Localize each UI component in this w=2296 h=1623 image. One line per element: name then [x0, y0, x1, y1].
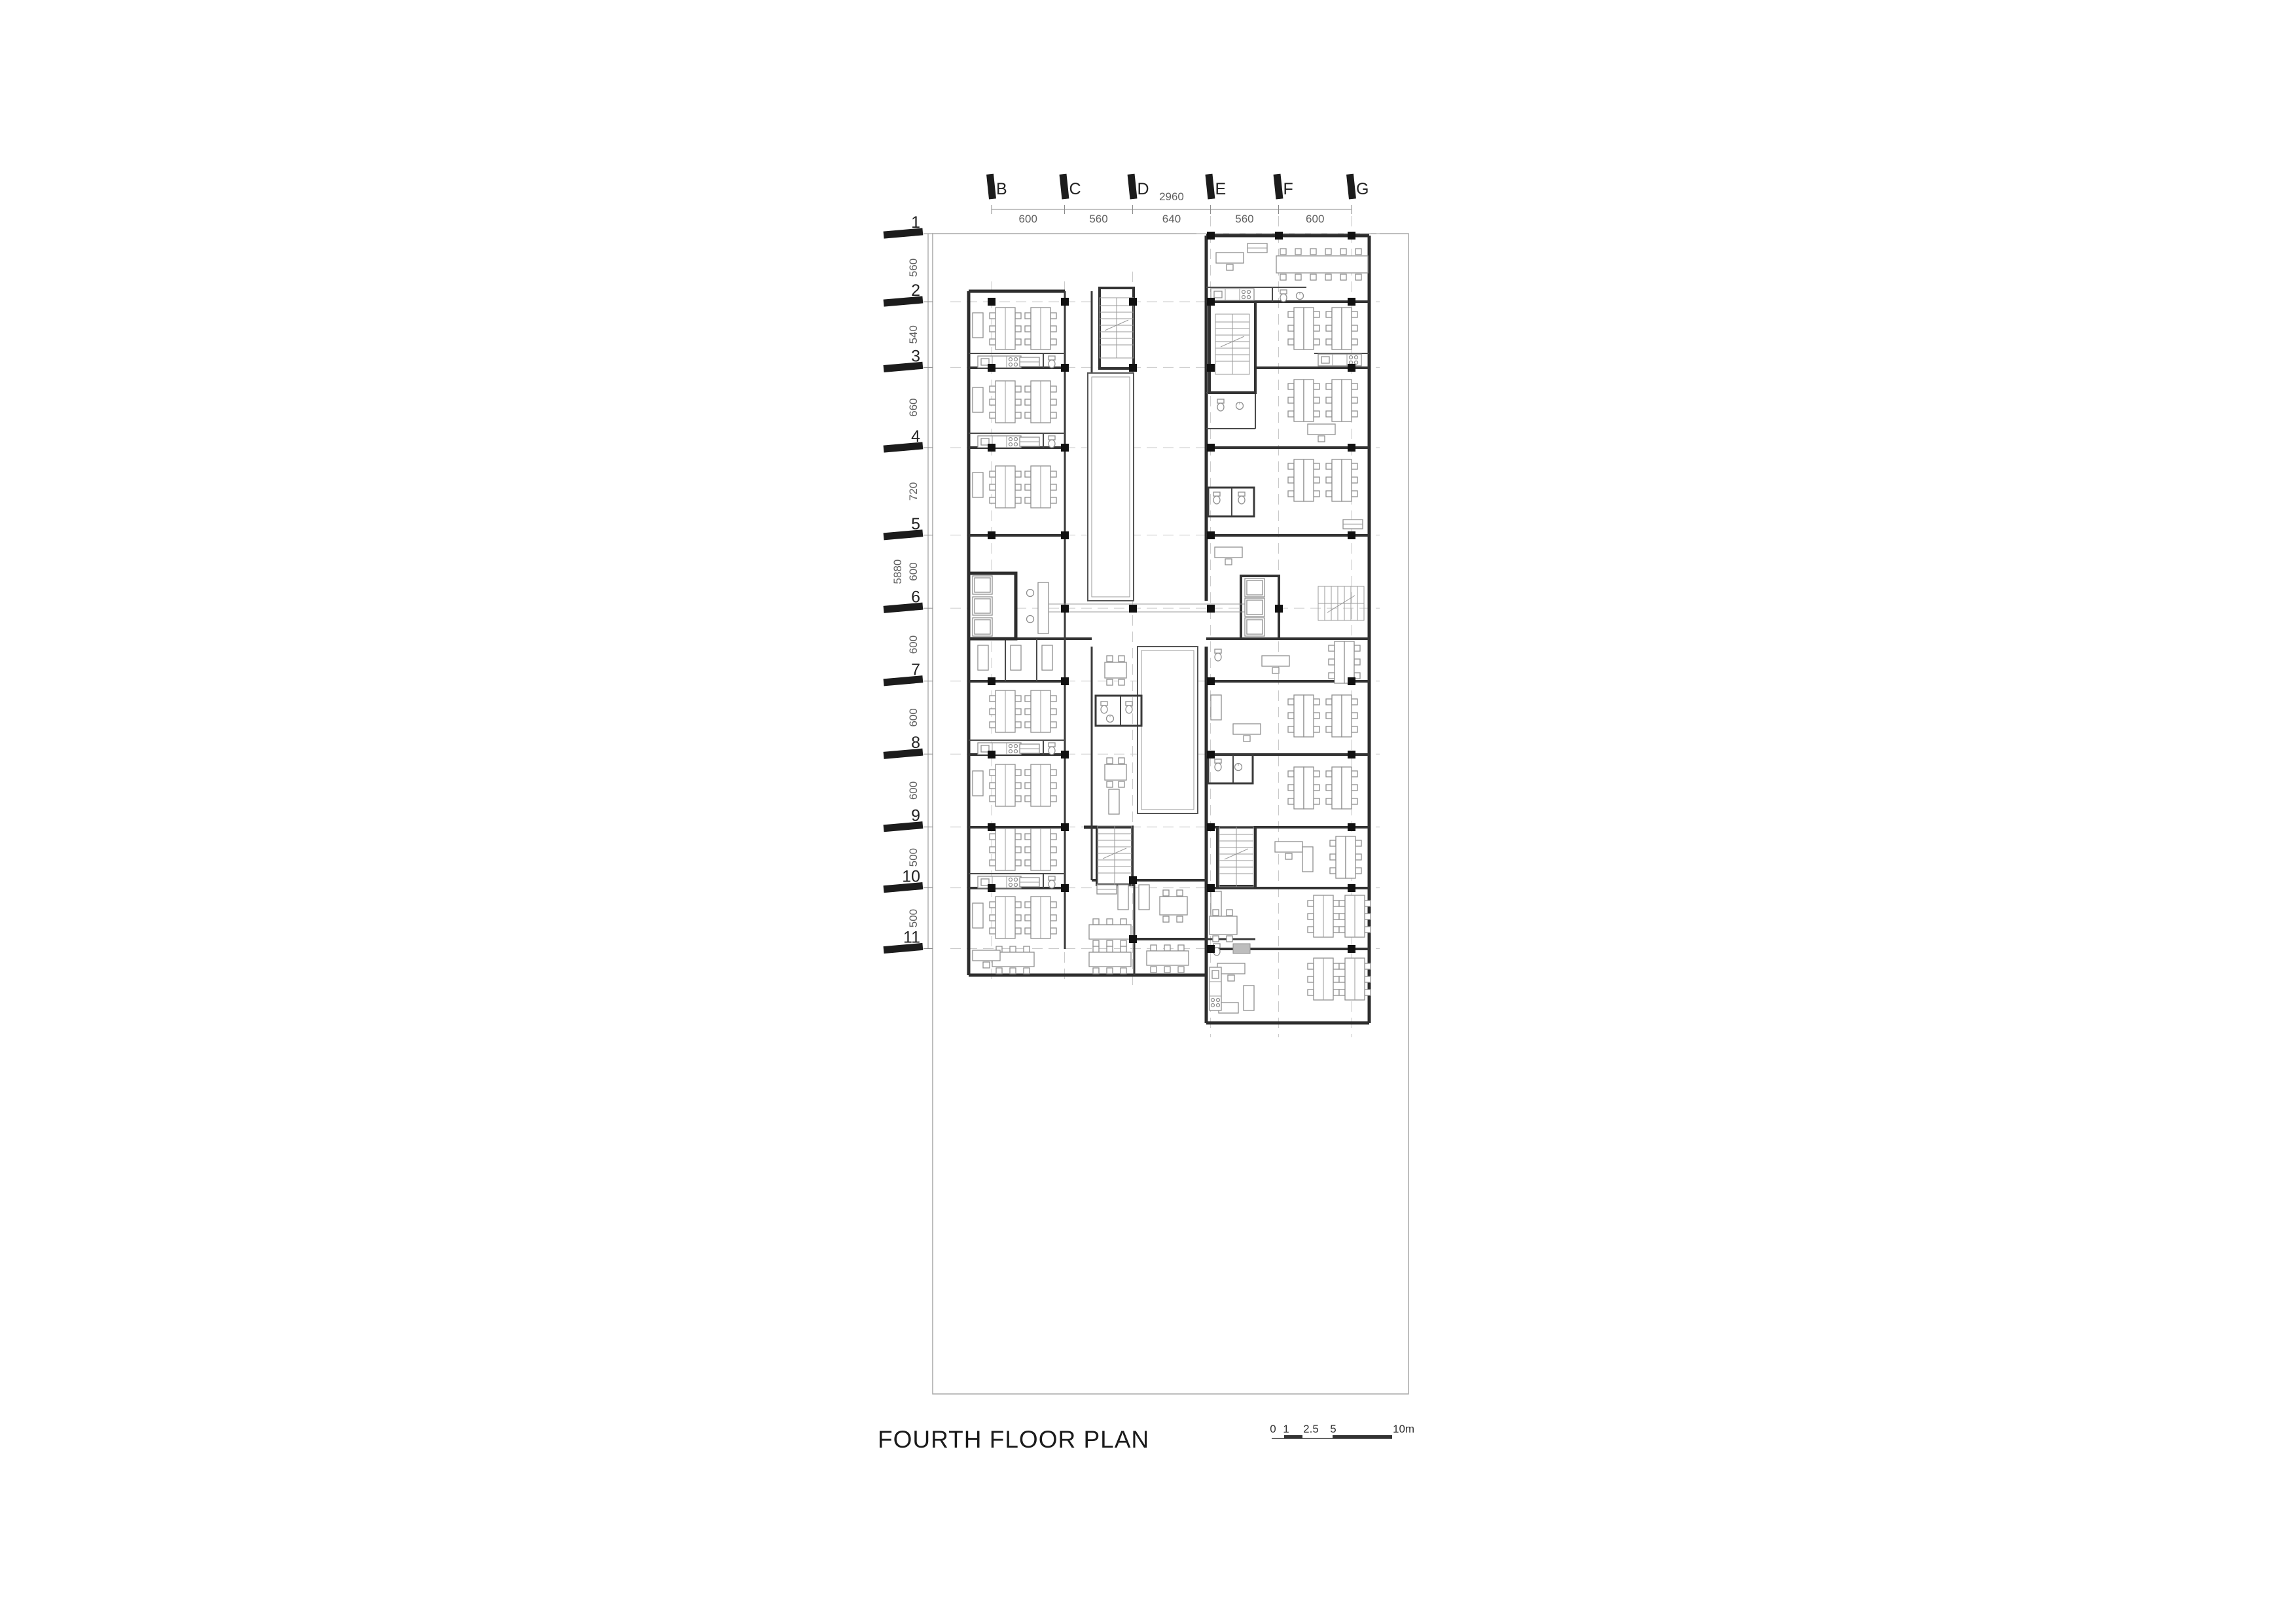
- toilet-icon: [1213, 492, 1220, 504]
- elevator-box: [1245, 598, 1265, 616]
- scale-label: 0: [1270, 1423, 1276, 1435]
- column-axis-tick: [1128, 174, 1138, 200]
- toilet-icon: [1049, 436, 1055, 448]
- column-marker: [1061, 531, 1069, 539]
- side-desk: [973, 387, 983, 412]
- side-desk: [1211, 695, 1221, 720]
- dimension-value: 600: [1019, 213, 1037, 225]
- row-axis-label: 3: [911, 347, 920, 365]
- scale-label: 2.5: [1303, 1423, 1319, 1435]
- dimension-value: 540: [907, 325, 920, 344]
- meeting-table: [990, 466, 1021, 508]
- elevator-box: [973, 576, 992, 594]
- side-desk: [1118, 885, 1128, 910]
- dimension-value: 640: [1162, 213, 1181, 225]
- column-marker: [1061, 364, 1069, 372]
- desk-cluster: [1288, 380, 1319, 421]
- toilet-icon: [1215, 649, 1221, 661]
- atrium-void: [1088, 373, 1134, 601]
- column-marker: [1061, 605, 1069, 613]
- column-axis-label: D: [1138, 180, 1149, 198]
- drawing-sheet: BCDEFG6005606405606002960 12345678910115…: [0, 0, 2296, 1623]
- elevator-box: [973, 618, 992, 636]
- dimension-value: 600: [1306, 213, 1324, 225]
- row-axis-label: 10: [902, 868, 920, 886]
- dimension-value: 660: [907, 399, 920, 417]
- column-marker: [1129, 605, 1137, 613]
- side-desk: [1244, 986, 1254, 1010]
- overall-dimension: 2960: [1159, 190, 1184, 203]
- kitchen-counter-top: [1233, 944, 1250, 954]
- meeting-table: [990, 381, 1021, 423]
- scale-bar: 0 1 2.5 5 10m: [1270, 1423, 1414, 1438]
- side-desk: [973, 903, 983, 928]
- column-marker: [1061, 298, 1069, 306]
- toilet-icon: [1101, 702, 1107, 713]
- elevator-box: [1245, 579, 1265, 597]
- meeting-table: [1025, 897, 1056, 938]
- planter: [1027, 616, 1034, 623]
- column-marker: [988, 677, 996, 685]
- meeting-table: [990, 829, 1021, 870]
- column-axis-label: E: [1215, 180, 1226, 198]
- toilet-icon: [1238, 492, 1245, 504]
- column-marker: [1348, 444, 1355, 452]
- column-axis-label: G: [1356, 180, 1369, 198]
- column-marker: [1207, 605, 1215, 613]
- row-axis-label: 5: [911, 515, 920, 533]
- column-marker: [1348, 823, 1355, 831]
- kitchen-counter: [978, 436, 1021, 448]
- desk: [1275, 842, 1302, 859]
- desk-cluster: [1326, 695, 1357, 737]
- column-marker: [988, 531, 996, 539]
- row-grid-ruler: 1234567891011560540660720600600600600500…: [884, 213, 933, 954]
- atrium-void: [1138, 647, 1198, 813]
- column-marker: [1348, 364, 1355, 372]
- column-marker: [1207, 364, 1215, 372]
- toilet-icon: [1126, 702, 1132, 713]
- sink-icon: [1107, 715, 1114, 722]
- meeting-table: [1308, 958, 1339, 1000]
- dimension-value: 560: [907, 259, 920, 277]
- sink-icon: [1236, 402, 1244, 410]
- title-block: FOURTH FLOOR PLAN: [878, 1426, 1149, 1453]
- row-axis-label: 4: [911, 427, 920, 446]
- meeting-table: [1025, 381, 1056, 423]
- column-marker: [1348, 232, 1355, 240]
- toilet-icon: [1215, 759, 1221, 771]
- meeting-table: [1025, 764, 1056, 806]
- conference-table: [1276, 249, 1368, 280]
- side-desk: [1011, 645, 1021, 670]
- cabinet: [1020, 357, 1039, 366]
- column-marker: [1348, 945, 1355, 953]
- column-marker: [1207, 945, 1215, 953]
- column-marker: [1207, 531, 1215, 539]
- meeting-table: [1339, 958, 1371, 1000]
- desk-cluster: [1330, 836, 1361, 878]
- desk-cluster: [1326, 380, 1357, 421]
- side-desk: [973, 771, 983, 796]
- conference-table-small: [1147, 945, 1189, 972]
- meeting-table: [1339, 895, 1371, 937]
- column-marker: [1129, 364, 1137, 372]
- dimension-value: 720: [907, 482, 920, 501]
- dimension-value: 600: [907, 562, 920, 580]
- scale-bar-segment: [1284, 1435, 1302, 1438]
- column-axis-label: B: [996, 180, 1007, 198]
- cabinet: [1343, 520, 1363, 529]
- column-marker: [988, 884, 996, 892]
- side-desk: [978, 645, 988, 670]
- row-axis-label: 6: [911, 588, 920, 606]
- side-desk: [973, 313, 983, 338]
- column-marker: [988, 444, 996, 452]
- column-marker: [988, 364, 996, 372]
- column-marker: [1348, 751, 1355, 758]
- desk: [1215, 547, 1242, 565]
- column-axis-label: F: [1283, 180, 1293, 198]
- side-desk: [1302, 847, 1313, 872]
- meeting-table: [1025, 690, 1056, 732]
- column-marker: [1207, 677, 1215, 685]
- toilet-icon: [1280, 290, 1287, 302]
- toilet-icon: [1049, 876, 1055, 888]
- column-marker: [1348, 677, 1355, 685]
- kitchen-counter: [978, 743, 1021, 755]
- conference-table-small: [1089, 946, 1131, 974]
- kitchen-counter: [978, 876, 1021, 888]
- column-marker: [1207, 884, 1215, 892]
- dimension-value: 600: [907, 781, 920, 800]
- column-axis-label: C: [1069, 180, 1081, 198]
- desk-cluster: [1326, 308, 1357, 349]
- desk-cluster: [1288, 459, 1319, 501]
- reception-desk: [1038, 582, 1049, 633]
- meeting-table: [1025, 829, 1056, 870]
- column-axis-tick: [1346, 174, 1356, 200]
- kitchen-counter: [978, 356, 1021, 368]
- toilet-icon: [1049, 356, 1055, 368]
- desk: [1262, 656, 1289, 673]
- plan-title: FOURTH FLOOR PLAN: [878, 1426, 1149, 1453]
- elevator-box: [1245, 618, 1265, 636]
- team-table: [1160, 890, 1187, 922]
- column-marker: [988, 298, 996, 306]
- scale-label: 5: [1330, 1423, 1336, 1435]
- desk-cluster: [1288, 767, 1319, 809]
- column-marker: [1207, 232, 1215, 240]
- row-axis-label: 1: [911, 213, 920, 232]
- meeting-table: [1025, 466, 1056, 508]
- sink-icon: [1297, 293, 1304, 300]
- column-marker: [988, 751, 996, 758]
- desk: [1308, 424, 1335, 442]
- desk-cluster: [1326, 767, 1357, 809]
- column-marker: [1129, 876, 1137, 884]
- planter: [1027, 590, 1034, 597]
- column-axis-tick: [986, 174, 996, 200]
- column-marker: [1275, 605, 1283, 613]
- sink-icon: [1235, 764, 1242, 771]
- row-axis-label: 7: [911, 661, 920, 679]
- dimension-value: 600: [907, 708, 920, 726]
- kitchen-counter: [1210, 967, 1221, 1010]
- meeting-table: [1025, 308, 1056, 349]
- dimension-value: 560: [1235, 213, 1253, 225]
- toilet-icon: [1049, 743, 1055, 755]
- column-marker: [1129, 935, 1137, 943]
- column-marker: [1207, 444, 1215, 452]
- cabinet: [1020, 744, 1039, 753]
- toilet-icon: [1217, 399, 1224, 411]
- column-marker: [1207, 298, 1215, 306]
- desk-cluster: [1288, 695, 1319, 737]
- meeting-table: [1308, 895, 1339, 937]
- cabinet: [1020, 437, 1039, 446]
- meeting-table: [990, 897, 1021, 938]
- desk-cluster: [1329, 641, 1360, 683]
- column-marker: [1207, 823, 1215, 831]
- scale-label: 10m: [1393, 1423, 1414, 1435]
- column-marker: [1061, 884, 1069, 892]
- row-axis-label: 2: [911, 281, 920, 300]
- desk: [1216, 253, 1244, 270]
- column-marker: [1275, 232, 1283, 240]
- column-axis-tick: [1205, 174, 1215, 200]
- dimension-value: 560: [1089, 213, 1107, 225]
- elevator-box: [973, 597, 992, 615]
- column-marker: [1348, 884, 1355, 892]
- column-marker: [1348, 298, 1355, 306]
- furniture-layer: [973, 243, 1371, 1010]
- column-marker: [1061, 444, 1069, 452]
- column-grid-ruler: BCDEFG6005606405606002960: [986, 174, 1369, 225]
- dimension-value: 600: [907, 635, 920, 654]
- cabinet: [1247, 243, 1267, 253]
- column-marker: [1348, 531, 1355, 539]
- desk: [1233, 724, 1261, 741]
- cabinet: [1020, 878, 1039, 887]
- column-axis-tick: [1274, 174, 1283, 200]
- meeting-table: [990, 690, 1021, 732]
- side-desk: [1042, 645, 1052, 670]
- desk-cluster: [1326, 459, 1357, 501]
- column-marker: [1061, 751, 1069, 758]
- side-desk: [973, 473, 983, 497]
- meeting-table: [990, 764, 1021, 806]
- conference-table-small: [1089, 919, 1131, 946]
- dimension-value: 500: [907, 909, 920, 927]
- team-table: [1210, 910, 1237, 942]
- column-marker: [1207, 751, 1215, 758]
- staircase: [1318, 586, 1364, 620]
- dimension-value: 500: [907, 848, 920, 866]
- column-marker: [1129, 298, 1137, 306]
- desk-cluster: [1288, 308, 1319, 349]
- column-marker: [1061, 677, 1069, 685]
- row-axis-label: 8: [911, 734, 920, 752]
- cafe-table: [1105, 758, 1126, 787]
- row-axis-label: 9: [911, 807, 920, 825]
- side-desk: [1109, 789, 1119, 814]
- column-marker: [988, 823, 996, 831]
- scale-bar-segment: [1333, 1435, 1392, 1438]
- drawing-page: BCDEFG6005606405606002960 12345678910115…: [0, 0, 2296, 1623]
- kitchen-counter: [1211, 289, 1254, 300]
- column-marker: [1061, 823, 1069, 831]
- row-axis-label: 11: [903, 929, 920, 947]
- overall-dimension: 5880: [891, 560, 904, 584]
- scale-label: 1: [1283, 1423, 1289, 1435]
- meeting-table: [990, 308, 1021, 349]
- floor-plan-drawing: [969, 232, 1371, 1023]
- side-desk: [1139, 885, 1149, 910]
- column-axis-tick: [1060, 174, 1069, 200]
- cabinet: [1097, 885, 1117, 894]
